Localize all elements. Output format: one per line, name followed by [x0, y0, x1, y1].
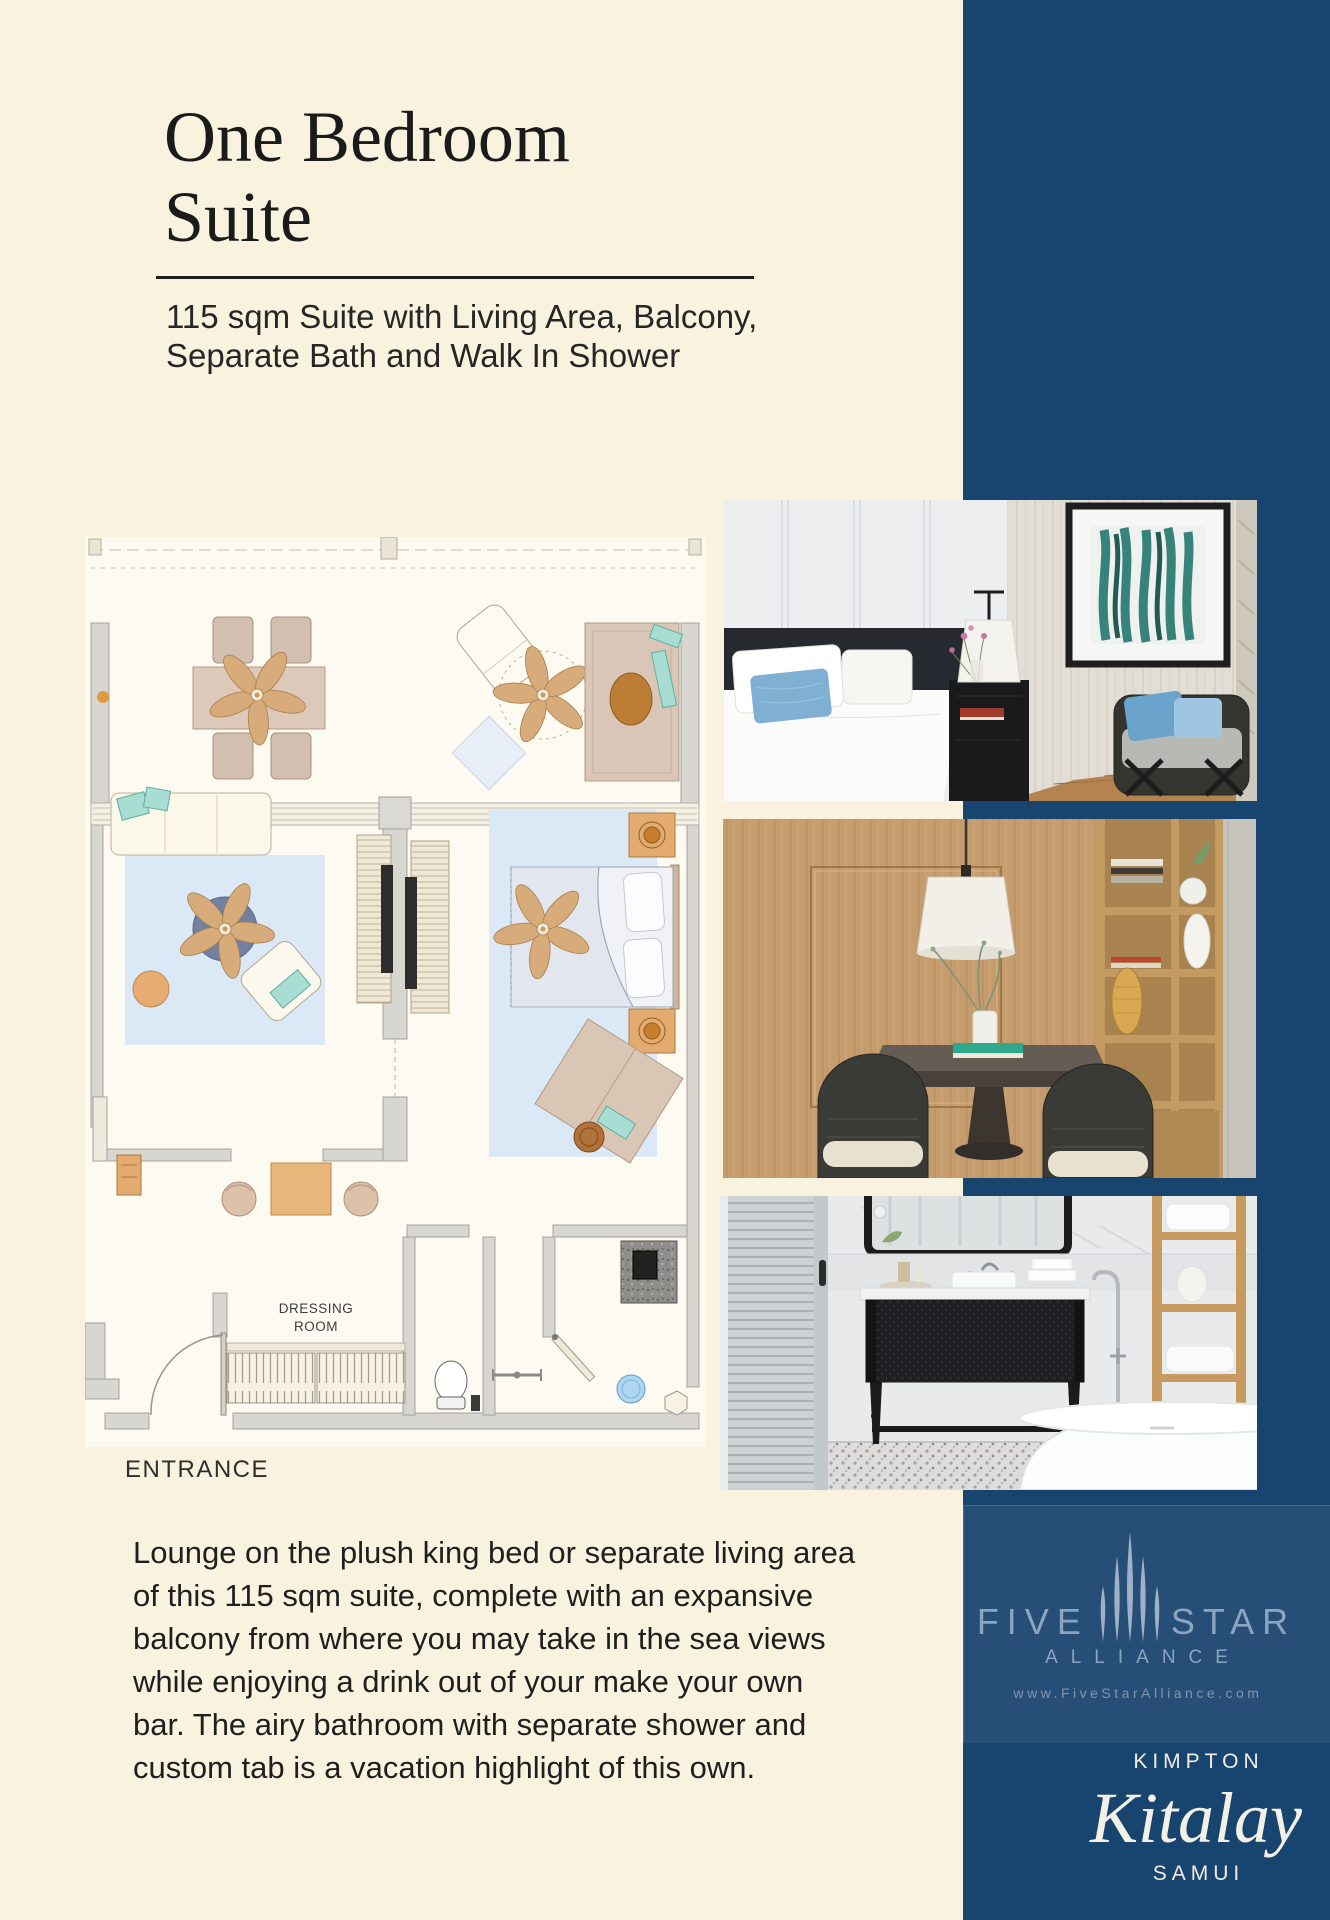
tv-icon: [405, 877, 417, 989]
page-title: One Bedroom Suite: [164, 97, 570, 257]
blue-pillow: [750, 668, 833, 724]
shutter-door: [720, 1196, 828, 1490]
bathroom-photo: [720, 1196, 1257, 1490]
wall-light-icon: [97, 691, 109, 703]
brochure-page: One Bedroom Suite 115 sqm Suite with Liv…: [0, 0, 1330, 1920]
tv-icon: [381, 865, 393, 973]
sink: [952, 1272, 1016, 1290]
fivestar-alliance-watermark: FIVE STAR ALLIANCE www.FiveStarAlliance.…: [963, 1505, 1330, 1743]
dining-nook-photo: [723, 819, 1256, 1178]
armchair: [1114, 690, 1249, 795]
brand-name-label: Kitalay: [1062, 1780, 1330, 1856]
white-vase: [1180, 878, 1206, 904]
gold-vase: [1112, 968, 1142, 1034]
fivestar-alliance-label: ALLIANCE: [964, 1647, 1309, 1669]
floor-plan-drawing: DRESSING ROOM: [85, 537, 706, 1447]
mirror: [868, 1196, 1068, 1254]
door-handle-icon: [819, 1260, 826, 1286]
counter-sink: [633, 1251, 657, 1279]
blue-pillow: [1174, 698, 1222, 738]
bathtub: [1020, 1402, 1257, 1490]
brand-kimpton-label: KIMPTON: [1062, 1750, 1330, 1774]
pendant-crystal-icon: [874, 1206, 886, 1218]
wall-art: [1069, 506, 1227, 664]
teardrop-vase: [1184, 914, 1210, 968]
bedroom-furniture: [480, 809, 683, 1163]
dressing-room-label: DRESSING: [279, 1301, 354, 1316]
wardrobe: [317, 1353, 405, 1403]
nightstand: [949, 680, 1029, 801]
bedroom-photo: [724, 500, 1257, 801]
fivestar-website: www.FiveStarAlliance.com: [964, 1685, 1309, 1701]
title-divider: [156, 276, 754, 279]
page-subtitle: 115 sqm Suite with Living Area, Balcony,…: [166, 297, 757, 375]
dressing-room-label: ROOM: [294, 1319, 338, 1334]
fivestar-spires-icon: [1091, 1530, 1169, 1642]
brand-location-label: SAMUI: [1062, 1862, 1330, 1886]
suite-description: Lounge on the plush king bed or separate…: [133, 1531, 855, 1789]
wardrobe: [227, 1353, 315, 1403]
fivestar-word-five: FIVE: [977, 1604, 1089, 1640]
entrance-label: ENTRANCE: [125, 1456, 269, 1484]
red-book: [960, 708, 1004, 717]
hotel-brand-logo: KIMPTON Kitalay SAMUI: [1062, 1750, 1330, 1886]
bath-tub-plan: [617, 1375, 645, 1403]
fivestar-word-star: STAR: [1171, 1604, 1296, 1640]
teal-book: [953, 1043, 1023, 1053]
